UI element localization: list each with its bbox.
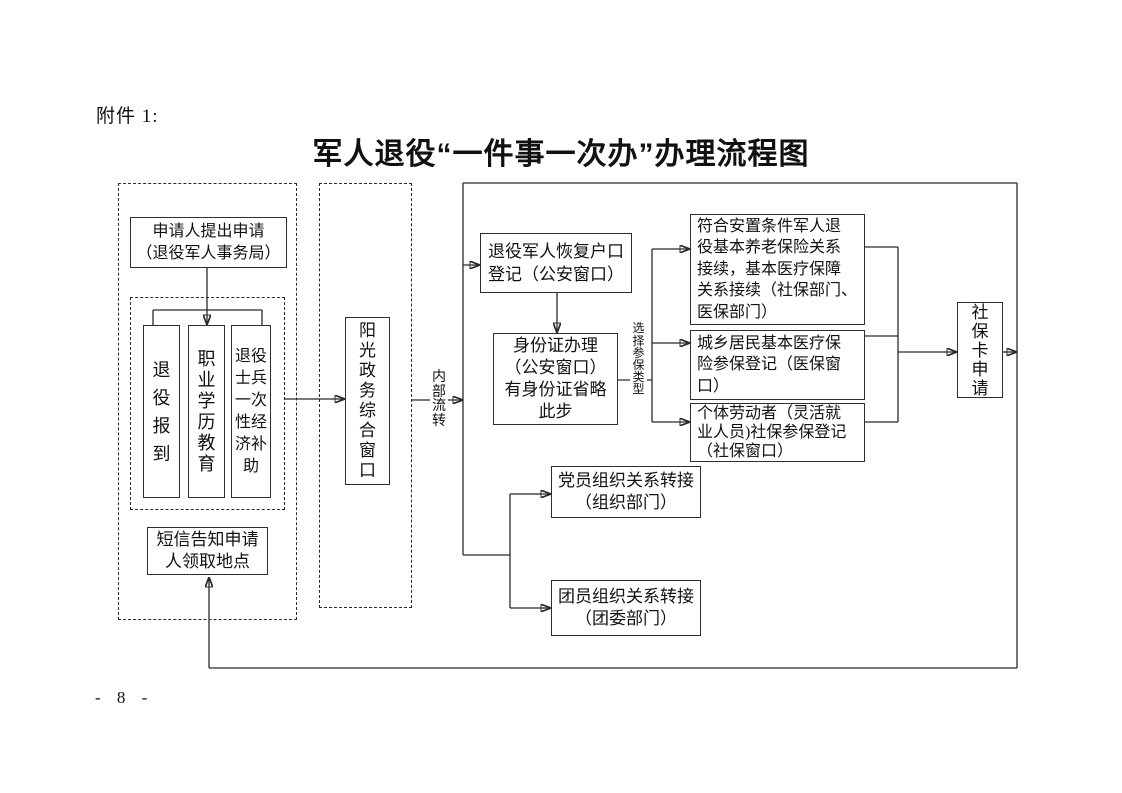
node-applicant: 申请人提出申请 （退役军人事务局） [130, 217, 287, 268]
node-party-transfer: 党员组织关系转接 （组织部门） [551, 466, 701, 518]
document-page: 附件 1: 军人退役“一件事一次办”办理流程图 - 8 - 申请人提出申请 （退… [0, 0, 1122, 793]
label-internal-flow: 内 部 流 转 [430, 371, 448, 429]
node-onetime-subsidy: 退役 士兵 一次 性经 济补 助 [231, 325, 271, 498]
node-league-transfer: 团员组织关系转接 （团委部门） [551, 580, 701, 636]
node-id-card: 身份证办理 （公安窗口） 有身份证省略 此步 [493, 333, 618, 425]
node-retire-checkin: 退 役 报 到 [143, 325, 180, 498]
label-select-insurance-type: 选 择 参 保 类 型 [630, 322, 647, 396]
page-title: 军人退役“一件事一次办”办理流程图 [0, 129, 1122, 173]
attachment-label: 附件 1: [96, 101, 159, 128]
node-social-card: 社 保 卡 申 请 [957, 302, 1003, 398]
node-pension-medical-continue: 符合安置条件军人退 役基本养老保险关系 接续，基本医疗保障 关系接续（社保部门、… [690, 214, 865, 325]
page-number: - 8 - [95, 688, 153, 708]
node-sms-notify: 短信告知申请 人领取地点 [147, 527, 268, 575]
node-vocational-education: 职 业 学 历 教 育 [188, 325, 225, 498]
node-hukou-restore: 退役军人恢复户口 登记（公安窗口） [480, 233, 632, 293]
node-sunshine-window: 阳 光 政 务 综 合 窗 口 [345, 317, 390, 485]
node-resident-medical: 城乡居民基本医疗保 险参保登记（医保窗 口） [690, 330, 865, 400]
node-individual-social: 个体劳动者（灵活就 业人员)社保参保登记 （社保窗口） [690, 403, 865, 462]
